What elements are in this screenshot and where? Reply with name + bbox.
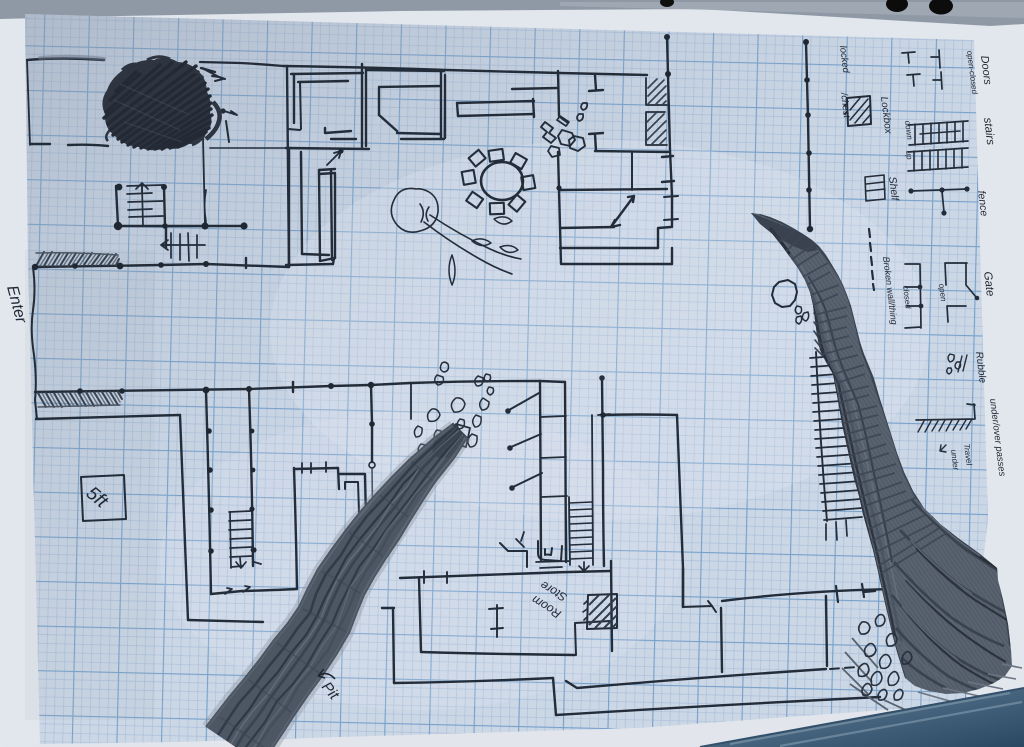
svg-text:up: up (904, 150, 914, 160)
